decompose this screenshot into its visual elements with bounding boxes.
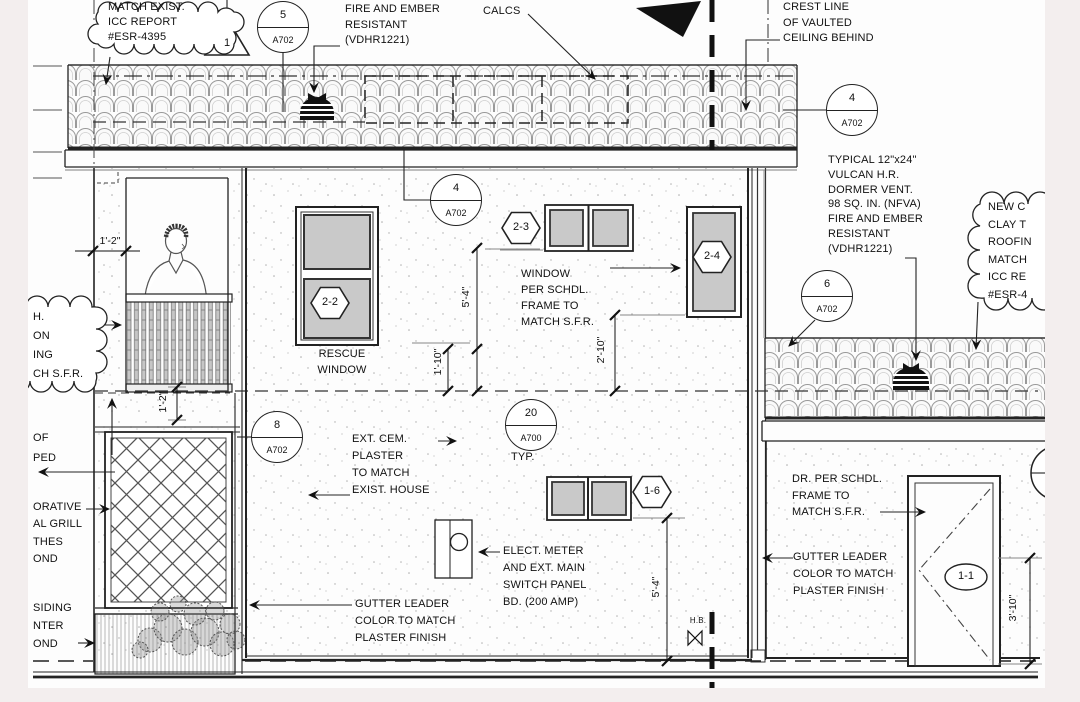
cloud-left-partial-note: H. ON ING CH S.F.R. xyxy=(33,308,83,384)
callout-4-a702-right: 4 A702 xyxy=(826,84,878,136)
note-rescue-window: RESCUE WINDOW xyxy=(313,347,371,378)
window-tag-2-4: 2-4 xyxy=(692,250,732,262)
callout-5-a702: 5 A702 xyxy=(257,1,309,53)
cloud-icc-note: MATCH EXIST. ICC REPORT #ESR-4395 xyxy=(108,0,185,45)
window-2-3 xyxy=(545,205,633,251)
window-tag-2-3: 2-3 xyxy=(501,221,541,233)
dim-1-2-vertical: 1'-2" xyxy=(157,379,169,425)
note-ext-plaster: EXT. CEM. PLASTER TO MATCH EXIST. HOUSE xyxy=(352,431,430,499)
dim-3-10: 3'-10" xyxy=(1007,585,1019,631)
dim-1-2-horizontal: 1'-2" xyxy=(88,235,132,247)
note-gutter-left: GUTTER LEADER COLOR TO MATCH PLASTER FIN… xyxy=(355,596,456,647)
note-crest-line: CREST LINE OF VAULTED CEILING BEHIND xyxy=(783,0,874,47)
note-siding-planter: SIDING NTER OND xyxy=(33,599,72,653)
door-tag-1-1: 1-1 xyxy=(946,570,986,582)
revision-triangle-label: 1 xyxy=(215,37,239,49)
note-fire-ember-top: FIRE AND EMBER RESISTANT (VDHR1221) xyxy=(345,2,440,49)
note-calcs: CALCS xyxy=(483,4,520,20)
note-door-schedule: DR. PER SCHDL. FRAME TO MATCH S.F.R. xyxy=(792,471,882,521)
note-typ: TYP. xyxy=(511,450,535,466)
window-tag-2-2: 2-2 xyxy=(310,296,350,308)
note-elect-meter: ELECT. METER AND EXT. MAIN SWITCH PANEL … xyxy=(503,543,587,611)
lattice-screen xyxy=(95,427,240,608)
window-2-2 xyxy=(296,207,378,345)
dim-5-4-upper: 5'-4" xyxy=(460,274,472,320)
callout-8-a702: 8 A702 xyxy=(251,411,303,463)
dim-5-4-lower: 5'-4" xyxy=(650,564,662,610)
sheet-margin-left xyxy=(0,0,28,702)
note-window-schedule: WINDOW PER SCHDL. FRAME TO MATCH S.F.R. xyxy=(521,266,594,330)
cloud-new-clay-note: NEW C CLAY T ROOFIN MATCH ICC RE #ESR-4 xyxy=(988,199,1032,304)
note-dormer-vent: TYPICAL 12"x24" VULCAN H.R. DORMER VENT.… xyxy=(828,153,923,257)
window-tag-1-6: 1-6 xyxy=(632,485,672,497)
sheet-margin-right xyxy=(1045,0,1080,702)
electric-meter xyxy=(435,520,472,578)
note-decorative-grill: ORATIVE AL GRILL THES OND xyxy=(33,499,82,568)
note-of-ped: OF PED xyxy=(33,428,56,468)
upper-roof xyxy=(65,65,797,170)
window-1-6 xyxy=(547,477,631,520)
dim-2-10: 2'-10" xyxy=(595,327,607,373)
note-gutter-right: GUTTER LEADER COLOR TO MATCH PLASTER FIN… xyxy=(793,549,894,600)
sheet-margin-bottom xyxy=(0,688,1080,702)
left-edge-stubs xyxy=(33,66,62,178)
railing-balusters xyxy=(127,302,231,384)
callout-20-a700: 20 A700 xyxy=(505,399,557,451)
note-hose-bib: H.B. xyxy=(684,616,712,625)
callout-4-a702-center: 4 A702 xyxy=(430,174,482,226)
callout-6-a702: 6 A702 xyxy=(801,270,853,322)
dim-1-10: 1'-10" xyxy=(432,339,444,385)
